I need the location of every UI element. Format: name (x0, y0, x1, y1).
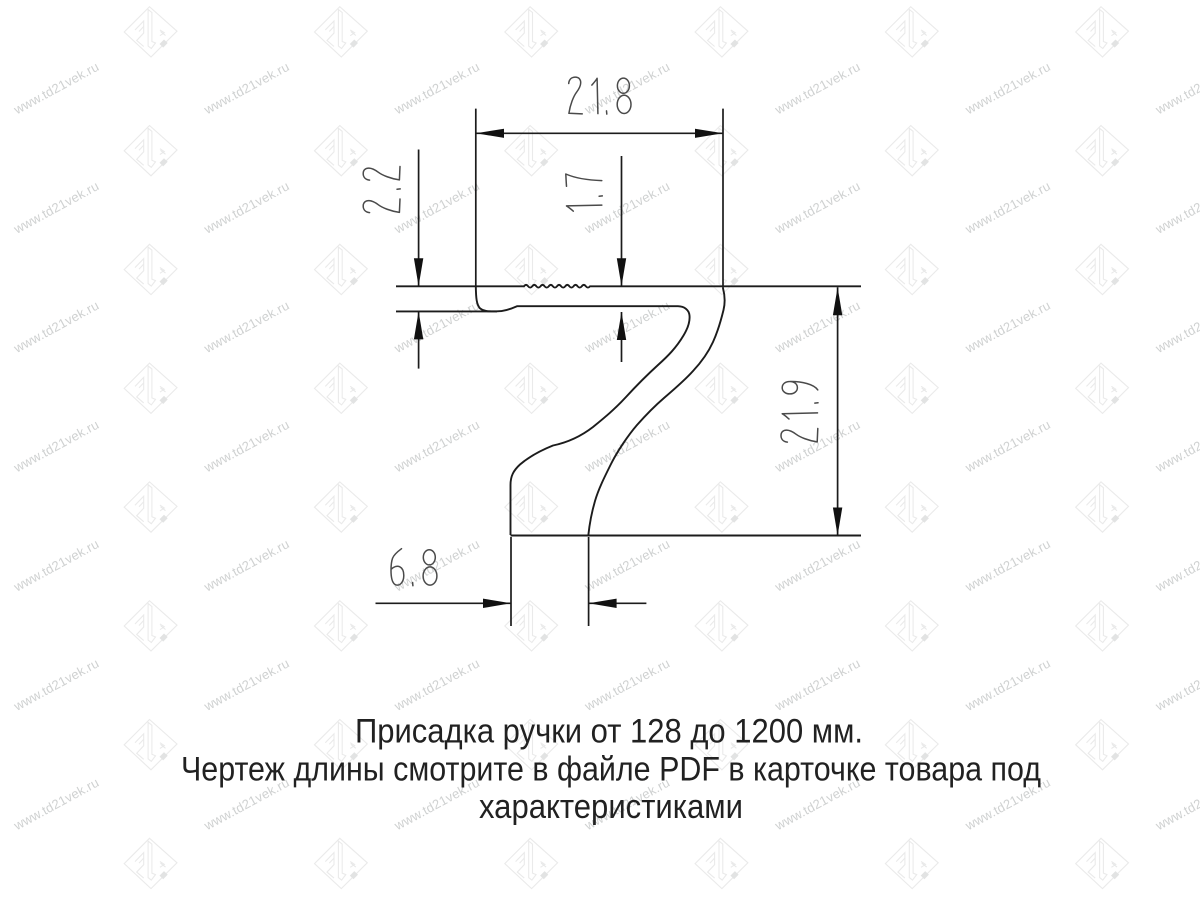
svg-text:Чертеж длины смотрите в файле: Чертеж длины смотрите в файле PDF в карт… (181, 750, 1041, 788)
svg-text:Присадка ручки от 128 до 1200: Присадка ручки от 128 до 1200 мм. (355, 713, 863, 751)
svg-text:характеристиками: характеристиками (479, 788, 743, 826)
